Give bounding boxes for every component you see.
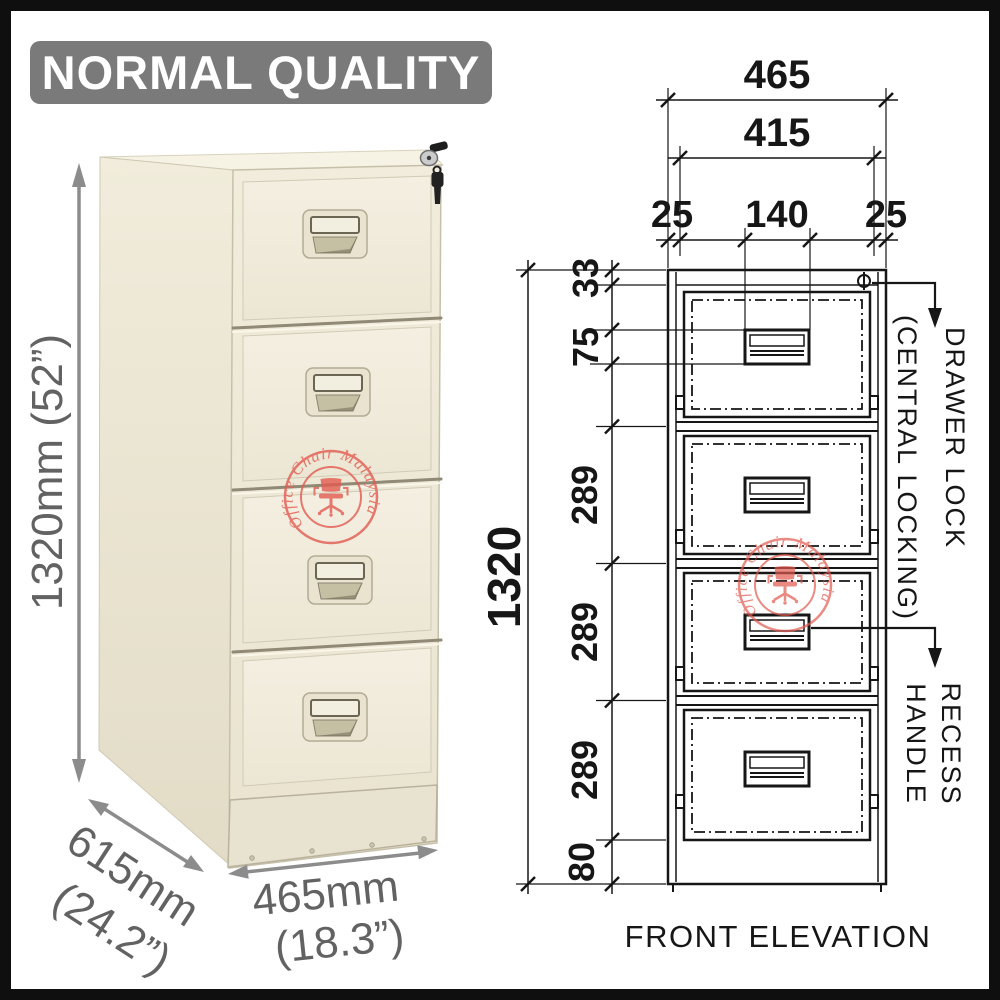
dim-width-inner: 415 [744,111,811,155]
drawing-drawer-tabs [676,396,878,808]
drawing-lock-symbol [858,272,870,290]
lock-callout-line1: DRAWER LOCK [940,327,970,549]
dim-margin-right: 25 [865,194,907,236]
dim-width-overall: 465 [744,53,811,97]
cabinet-side-face [99,157,233,866]
dim-height-overall: 1320 [478,526,530,628]
height-dimension-label: 1320mm (52”) [23,334,72,610]
dim-top-rail: 33 [565,258,606,298]
drawing-handle-1 [745,330,809,364]
drawer-handle-3 [308,556,372,604]
drawer-handle-1 [303,210,367,258]
recess-callout-line2: HANDLE [901,683,931,805]
quality-banner-label: NORMAL QUALITY [42,45,481,100]
dim-handle-width: 140 [745,194,808,236]
scene-canvas: 1320mm (52”) 615mm (24.2”) 465mm (18.3”) [0,0,1000,1000]
product-spec-image: NORMAL QUALITY [0,0,1000,1000]
quality-banner: NORMAL QUALITY [30,41,492,104]
recess-leader-arrow [811,628,942,668]
height-dimension-arrow [72,163,86,783]
recess-callout-line1: RECESS [936,682,966,805]
drawing-drawer-panels [684,292,870,840]
drawing-handle-2 [745,478,809,512]
cabinet-photo: 1320mm (52”) 615mm (24.2”) 465mm (18.3”) [23,141,448,985]
drawing-handle-4 [745,752,809,786]
lock-callout-line2: (CENTRAL LOCKING) [892,315,922,621]
dim-pitch-1: 289 [564,465,605,525]
dim-pitch-2: 289 [564,602,605,662]
dim-margin-left: 25 [651,194,693,236]
drawer-handle-4 [303,693,367,741]
dim-handle-height: 75 [565,327,606,367]
drawing-title: FRONT ELEVATION [625,919,932,954]
dim-pitch-3: 289 [564,740,605,800]
drawer-handle-2 [306,368,370,416]
drawing-dividers [676,422,878,705]
left-extension-lines [516,270,745,884]
dim-base-height: 80 [561,842,602,882]
